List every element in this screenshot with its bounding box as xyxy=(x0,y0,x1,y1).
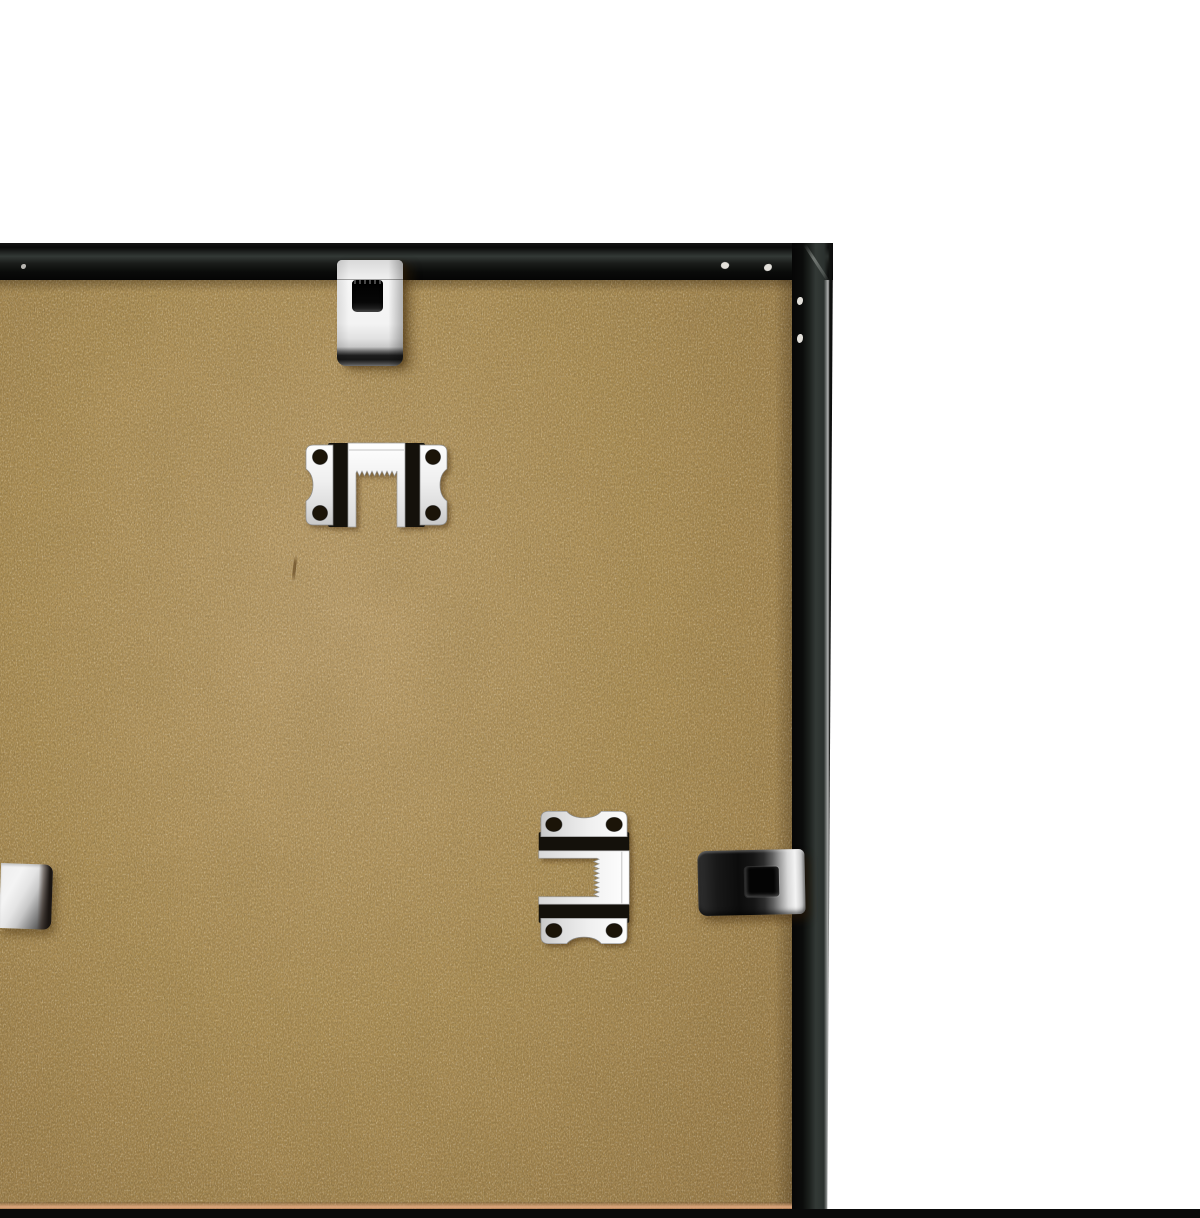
spring-clip-top-hole xyxy=(352,280,383,312)
sawtooth-hanger-icon xyxy=(303,440,450,530)
mdf-backing-board xyxy=(0,280,794,1209)
spring-clip-left xyxy=(0,863,53,930)
mdf-texture xyxy=(0,280,794,1209)
sawtooth-hanger-rotated xyxy=(535,808,632,946)
sawtooth-hanger-icon xyxy=(535,808,632,946)
bottom-frame-strip xyxy=(0,1209,1200,1218)
shadow-along-right-rail xyxy=(774,280,794,1209)
sawtooth-hanger-top xyxy=(303,440,450,530)
spring-clip-top xyxy=(337,260,403,366)
frame-top-edge xyxy=(0,243,833,280)
frame-right-edge xyxy=(792,243,833,1218)
spring-clip-right xyxy=(697,849,805,916)
product-photo xyxy=(0,18,1200,1218)
spring-clip-top-cap xyxy=(337,260,403,280)
sawtooth-hanger-side xyxy=(535,808,632,946)
spring-clip-right-hole xyxy=(745,866,780,897)
